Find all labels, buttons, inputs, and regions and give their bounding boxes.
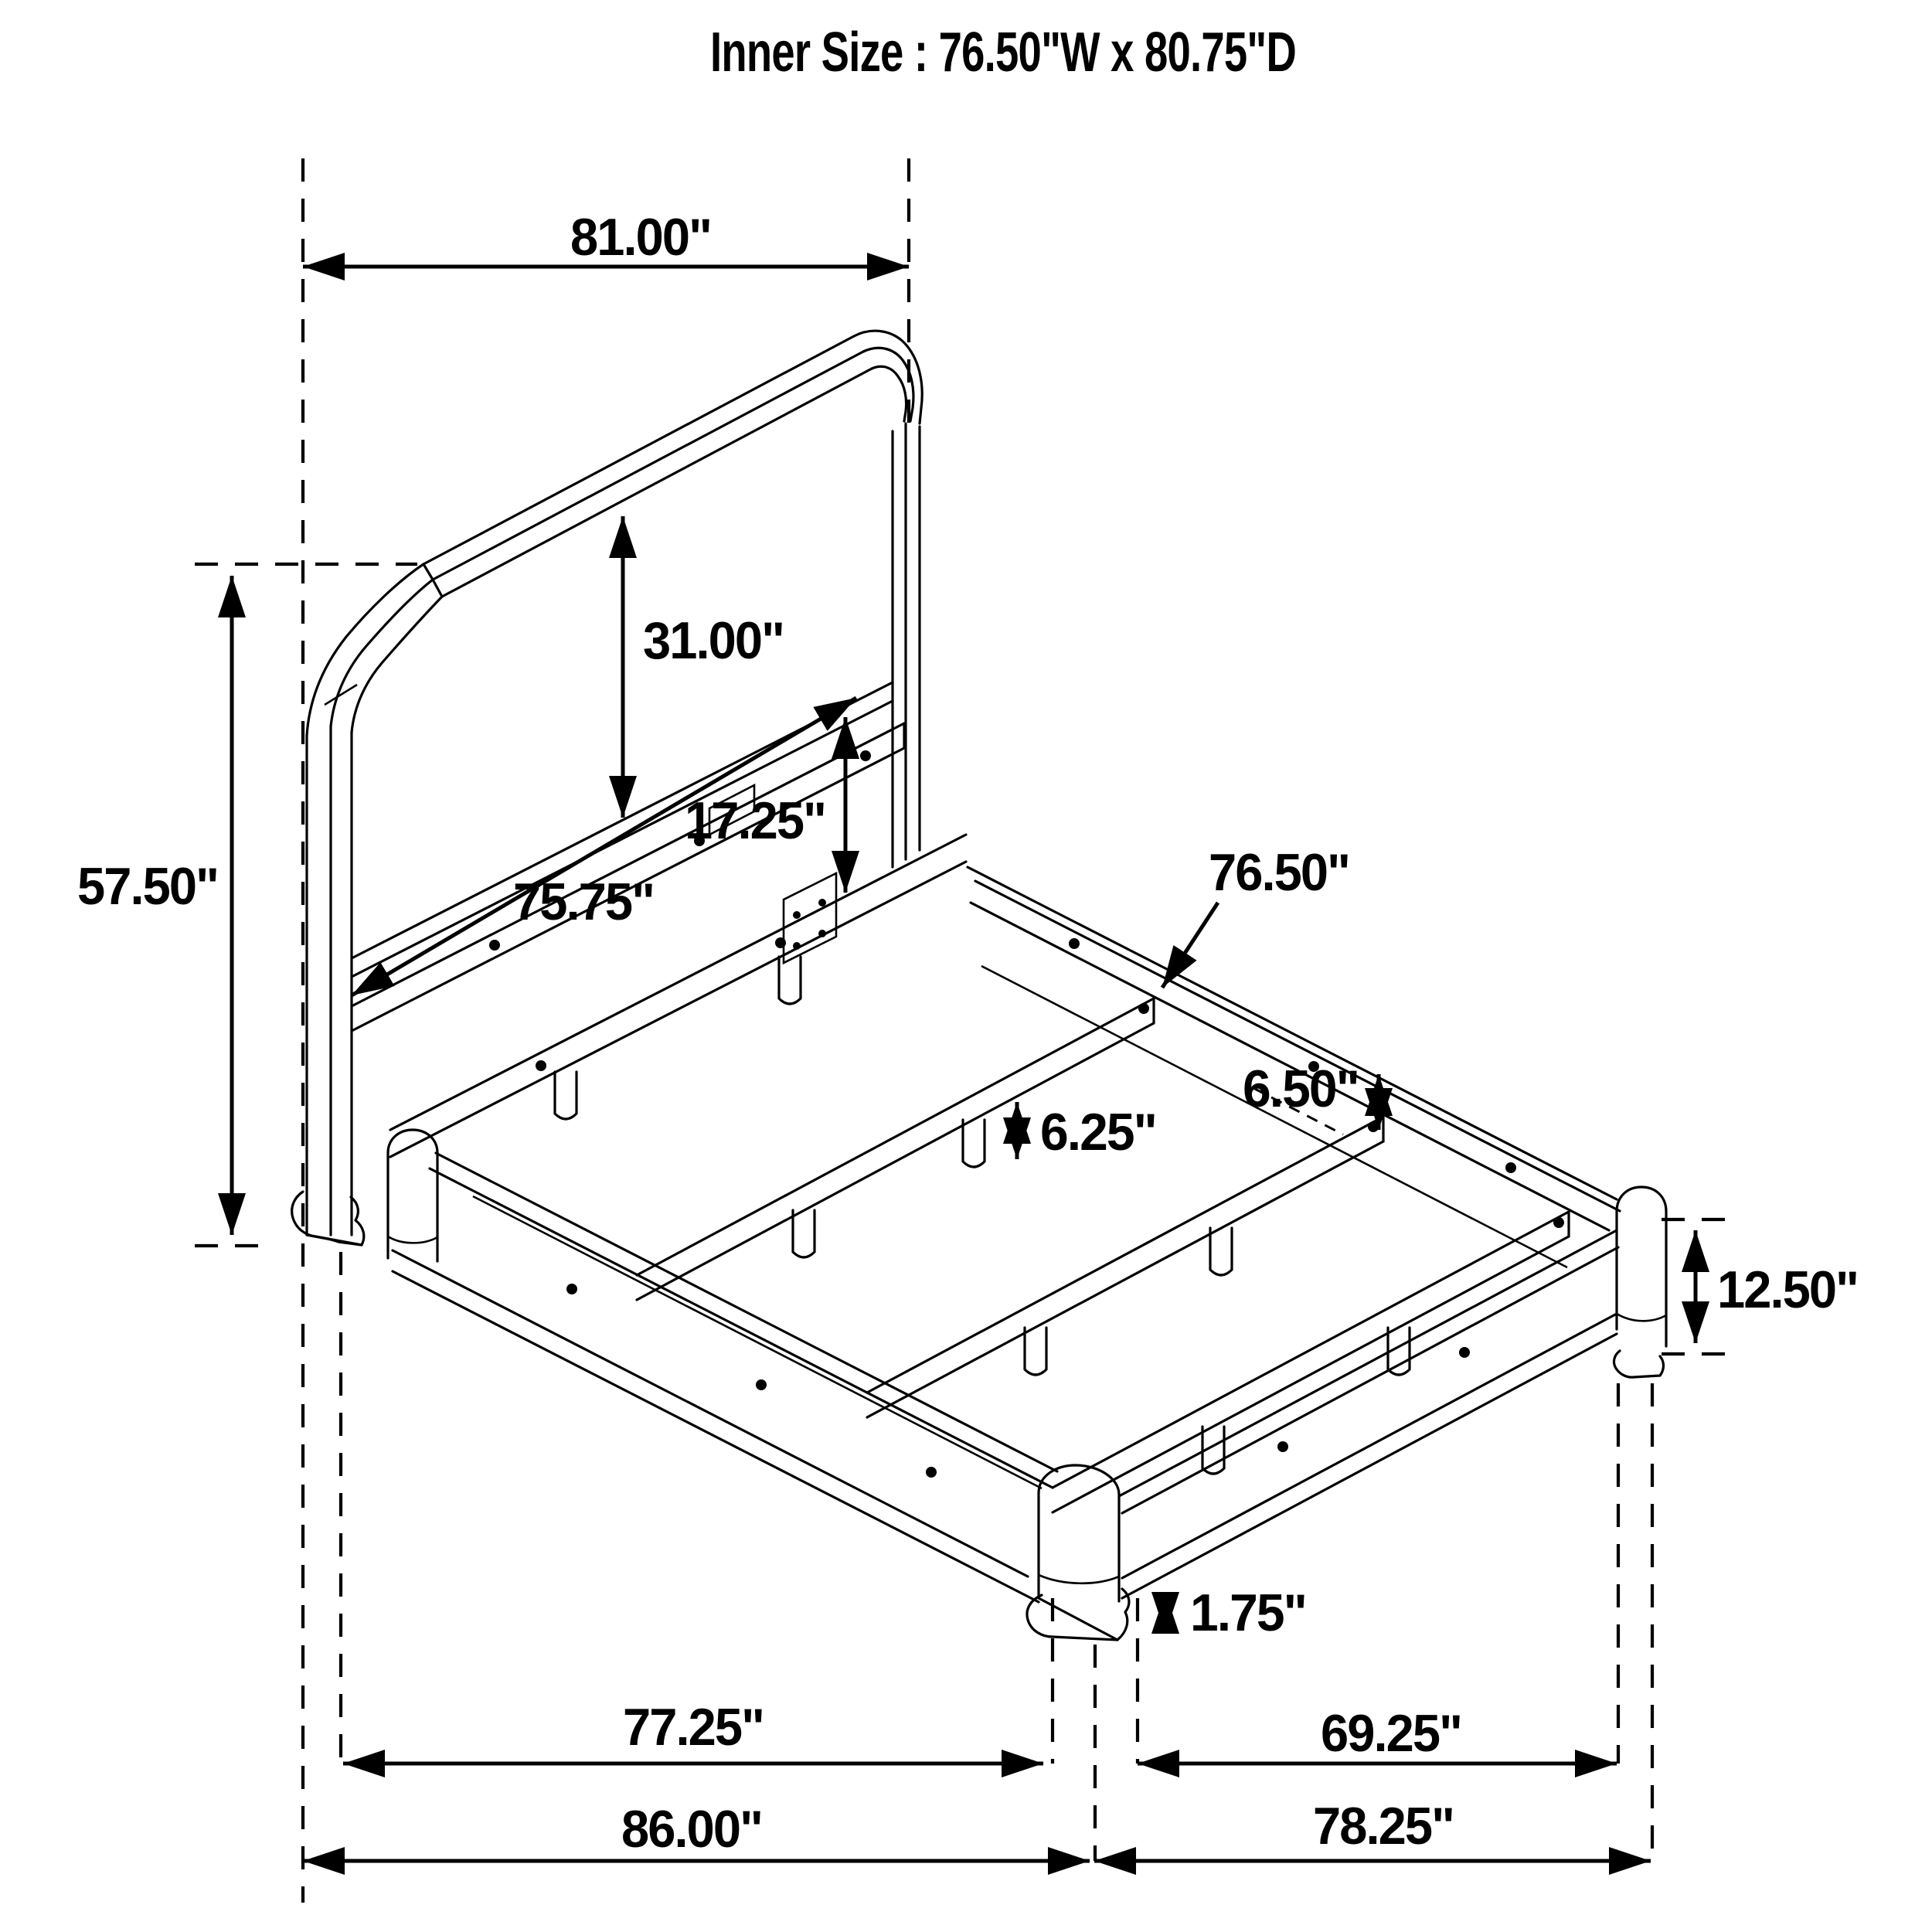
headboard-left-ear <box>307 564 442 736</box>
dim-label-650: 6.50" <box>1243 1060 1359 1118</box>
foot-corner-post <box>1027 1465 1129 1640</box>
dim-headboard-width: 81.00" <box>303 208 909 267</box>
dim-panel-height: 31.00" <box>623 516 784 818</box>
dim-label-7575: 75.75" <box>513 872 654 931</box>
right-corner-post <box>1614 1187 1666 1377</box>
dim-label-7650: 76.50" <box>1209 843 1349 902</box>
dim-label-6925: 69.25" <box>1321 1704 1461 1763</box>
dim-label-7825: 78.25" <box>1313 1797 1454 1855</box>
dim-frame-height: 12.50" <box>1696 1230 1858 1343</box>
front-side-rail <box>393 1153 1057 1602</box>
dim-headboard-height: 57.50" <box>77 576 232 1235</box>
page-title: Inner Size : 76.50"W x 80.75"D <box>710 22 1296 83</box>
dim-overall-depth: 86.00" <box>303 1800 1090 1861</box>
headboard-top-edge <box>423 336 872 597</box>
dim-label-5750: 57.50" <box>77 857 218 916</box>
dim-slat-gap-far: 6.50" <box>1243 1060 1379 1130</box>
dim-label-625: 6.25" <box>1040 1103 1156 1162</box>
head-rail <box>390 835 966 1157</box>
dim-slat-gap-near: 6.25" <box>1017 1102 1156 1162</box>
dimension-annotations: 81.00" 57.50" 31.00" 17.25" 75.75" 76.50… <box>77 208 1858 1861</box>
dim-label-1250: 12.50" <box>1717 1260 1858 1319</box>
bed-frame-drawing <box>292 331 1666 1640</box>
dim-label-8600: 86.00" <box>621 1800 762 1859</box>
headboard-right-ear <box>854 331 922 423</box>
mounting-plate <box>784 873 836 963</box>
diagram-canvas: 81.00" 57.50" 31.00" 17.25" 75.75" 76.50… <box>0 0 1932 1932</box>
dim-side-rail-inner: 77.25" <box>343 1698 1043 1764</box>
foot-rail <box>1119 1230 1618 1598</box>
dim-slat-length: 76.50" <box>1162 843 1349 988</box>
dashed-guides <box>195 158 1726 1903</box>
dim-label-7725: 77.25" <box>623 1698 764 1757</box>
left-corner-post <box>388 1130 437 1261</box>
dim-label-1725: 17.25" <box>685 791 825 850</box>
dim-foot-height: 1.75" <box>1165 1583 1306 1642</box>
dim-foot-rail-inner: 69.25" <box>1138 1704 1617 1764</box>
headboard-right-post <box>893 423 920 867</box>
bed-dimension-diagram: 81.00" 57.50" 31.00" 17.25" 75.75" 76.50… <box>0 0 1932 1932</box>
dim-overall-width: 78.25" <box>1094 1797 1651 1861</box>
dim-rail-to-floor: 17.25" <box>685 717 845 893</box>
dim-label-3100: 31.00" <box>643 611 784 670</box>
dim-label-175: 1.75" <box>1190 1583 1306 1642</box>
dim-label-81: 81.00" <box>570 208 711 267</box>
